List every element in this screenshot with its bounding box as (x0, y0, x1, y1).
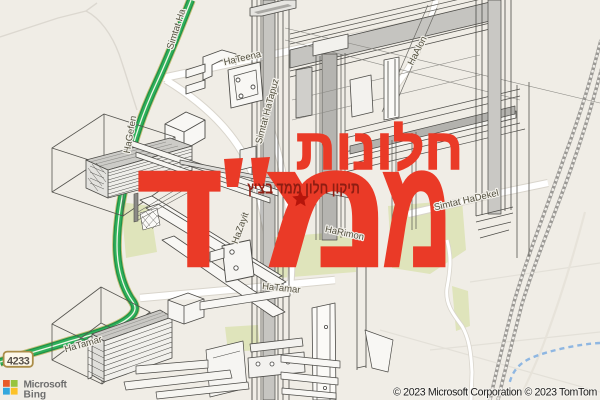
svg-text:מ: מ (382, 127, 453, 299)
svg-text:תיקון חלון ממד בציץ: תיקון חלון ממד בציץ (247, 179, 360, 198)
svg-text:ד: ד (137, 126, 224, 299)
svg-text:4233: 4233 (7, 355, 30, 367)
svg-text:© 2023 Microsoft Corporation ©: © 2023 Microsoft Corporation © 2023 TomT… (393, 387, 597, 399)
svg-text:מ: מ (265, 126, 391, 299)
svg-text:Bing: Bing (24, 389, 47, 400)
